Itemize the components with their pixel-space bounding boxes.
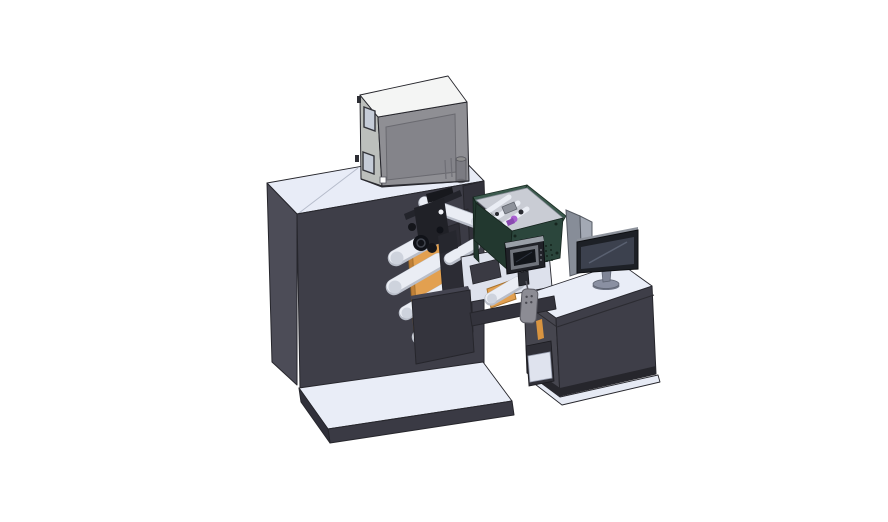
roller-end-cap <box>487 294 497 304</box>
hand-remote <box>520 288 538 323</box>
hmi-button <box>540 249 542 251</box>
enclosure-screw <box>556 252 559 255</box>
gear-small <box>427 243 437 253</box>
hmi-button <box>540 259 542 261</box>
feeder-label-sticker <box>380 177 386 183</box>
roller-end-cap <box>402 308 413 319</box>
gear-large <box>413 235 429 251</box>
feeder-window-lower <box>363 152 374 174</box>
machine-assembly-render <box>0 0 888 522</box>
monitor-neck <box>602 270 611 282</box>
roller-end-cap <box>391 252 404 265</box>
feeder-hinge <box>355 155 359 162</box>
interior-dark-part <box>519 210 524 215</box>
feeder-exhaust-cylinder-top <box>456 157 466 161</box>
feeder-window-upper <box>364 107 375 131</box>
enclosure-screw <box>555 223 558 226</box>
hmi-button <box>540 254 542 256</box>
feeder-exhaust-cylinder-body <box>456 159 466 181</box>
lower-block <box>412 290 474 364</box>
head-white-knob <box>439 210 444 215</box>
top-feeder-box <box>355 76 469 187</box>
interior-dark-part <box>495 212 499 216</box>
cad-render-stage <box>0 0 888 522</box>
feeder-hinge <box>357 96 361 103</box>
remote-body <box>520 288 538 323</box>
roller-end-cap <box>389 281 402 294</box>
cabinet-left-face <box>267 183 297 385</box>
gear-pin <box>437 227 444 234</box>
gear-idler <box>408 223 416 231</box>
desk-bay-floor <box>528 352 552 382</box>
enclosure-screw <box>514 235 517 238</box>
